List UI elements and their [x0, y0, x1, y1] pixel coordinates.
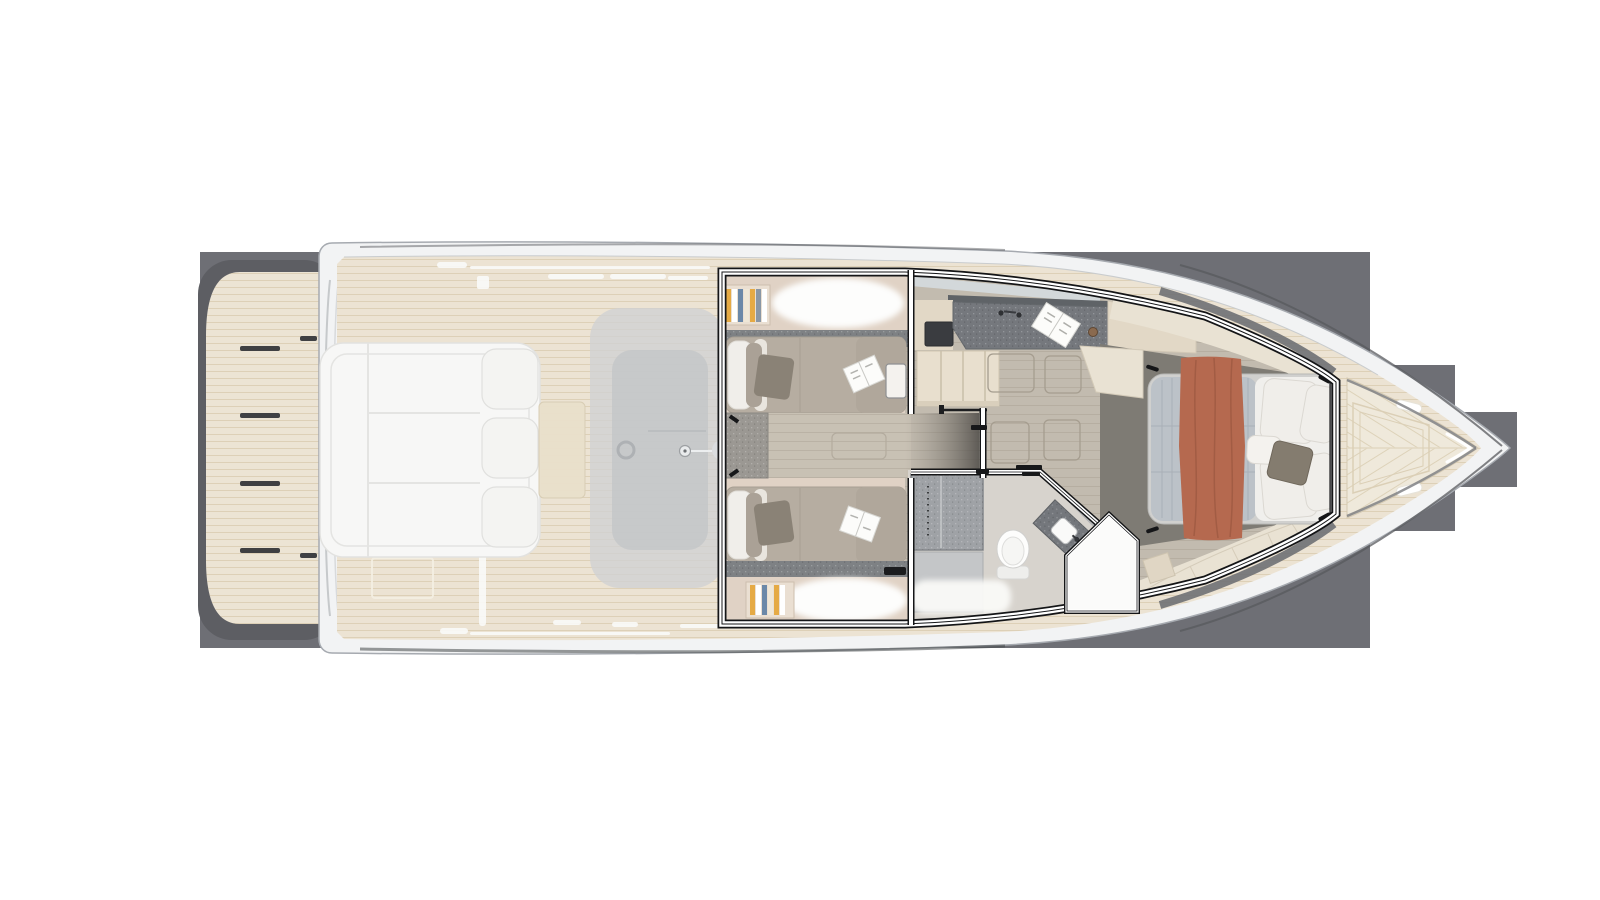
book: [738, 289, 743, 322]
master-bed: [1148, 357, 1342, 541]
backrest-cushion-2: [482, 418, 538, 478]
console-sink-drain: [683, 449, 686, 452]
bedding-niche-bottom: [783, 578, 907, 622]
berth-top: [726, 337, 906, 413]
deck-slot-3: [548, 274, 604, 279]
bath-door-hinge: [1016, 465, 1042, 470]
bath-mat: [911, 580, 1011, 614]
platform-step-2: [240, 413, 280, 418]
floorplan-stage: [0, 0, 1600, 900]
transom-cleat-top: [300, 336, 317, 341]
book: [780, 585, 785, 615]
deck-slot-1: [437, 262, 467, 268]
book: [726, 289, 731, 322]
book: [750, 289, 755, 322]
platform-step-3: [240, 481, 280, 486]
platform-step-1: [240, 346, 280, 351]
swim-platform-planks: [206, 272, 332, 624]
shower-texture: [911, 474, 983, 550]
corridor: [716, 413, 979, 478]
deck-slot-4: [610, 274, 666, 279]
toilet: [997, 530, 1029, 579]
deck-slot-6: [440, 628, 468, 634]
toilet-seat: [1002, 537, 1024, 565]
pillow-dark: [753, 500, 794, 547]
book: [762, 289, 767, 322]
remote-control: [884, 567, 906, 575]
galley-counter-texture: [953, 302, 1108, 349]
book: [744, 289, 749, 322]
corridor-shadow: [905, 413, 979, 478]
book: [756, 289, 761, 322]
aft-deck-ghost: [320, 308, 732, 588]
book: [756, 585, 761, 615]
book: [774, 585, 779, 615]
transom-cleat-bottom: [300, 553, 317, 558]
book: [750, 585, 755, 615]
deck-slot-7: [553, 620, 581, 625]
deck-gate-tab-top: [477, 276, 489, 289]
floorplan-canvas: [0, 0, 1600, 900]
counter-knob: [1089, 328, 1098, 337]
bedding-niche-top: [772, 278, 904, 328]
deck-slot-10: [470, 632, 670, 635]
door-handle-bottom: [976, 469, 989, 474]
door-handle-top: [971, 425, 987, 430]
backrest-cushion-1: [482, 349, 538, 409]
faucet-dot-1: [998, 310, 1003, 315]
wardrobe-band-bottom-texture: [716, 561, 911, 577]
throw-blanket: [1179, 357, 1245, 541]
pillow-dark: [753, 354, 794, 401]
deck-gate-seam-bottom: [479, 552, 486, 626]
berth-bottom: [726, 487, 906, 563]
berth-top-tray: [886, 364, 906, 398]
companionway-stairs: [917, 351, 999, 406]
handrail-bracket: [939, 405, 944, 414]
deck-slot-8: [612, 622, 638, 627]
books-top: [726, 289, 767, 322]
faucet-dot-2: [1016, 312, 1021, 317]
bath-door-handle: [1022, 472, 1040, 476]
deck-slot-5: [668, 276, 708, 280]
cockpit-table: [539, 402, 585, 498]
galley-appliance: [925, 322, 953, 346]
book: [768, 585, 773, 615]
stair-bottom-edge: [917, 401, 999, 406]
deck-slot-2: [470, 266, 710, 269]
sunpad-backrests: [482, 349, 538, 547]
deck-slot-9: [680, 624, 720, 628]
platform-step-4: [240, 548, 280, 553]
backrest-cushion-3: [482, 487, 538, 547]
swim-platform: [206, 272, 332, 624]
book: [732, 289, 737, 322]
book: [762, 585, 767, 615]
